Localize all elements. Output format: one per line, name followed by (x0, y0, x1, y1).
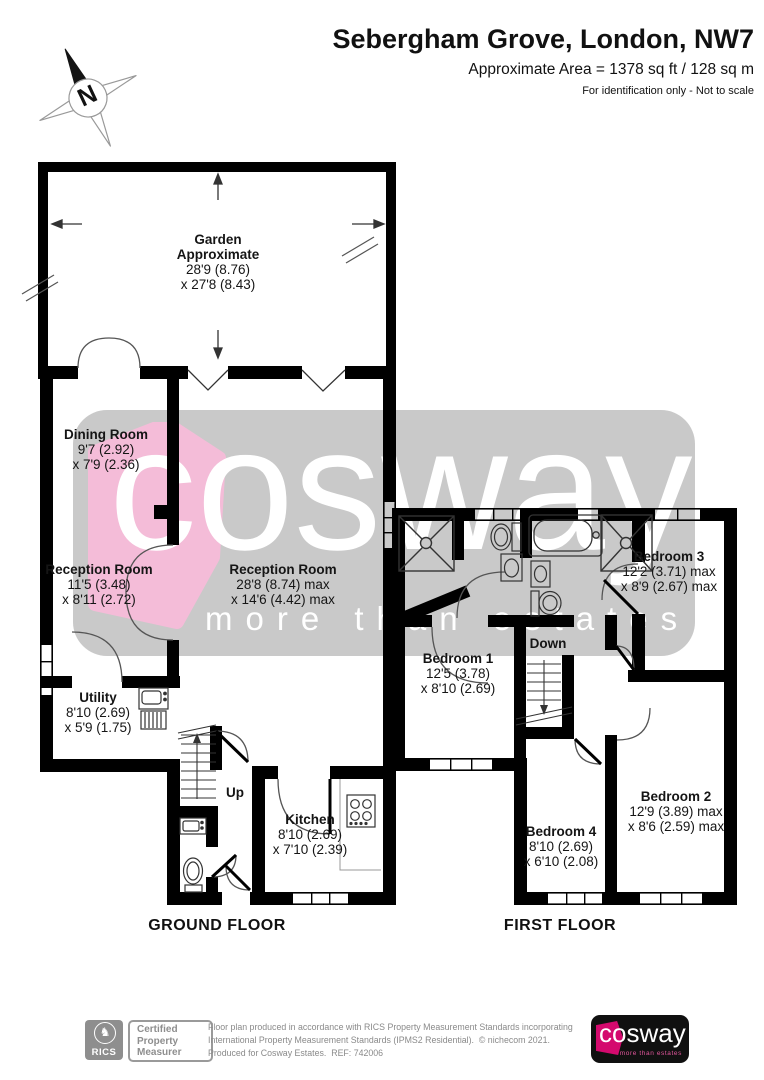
stairs-up-label: Up (226, 785, 244, 800)
bedroom-3-label: Bedroom 3 12'2 (3.71) max x 8'9 (2.67) m… (621, 549, 717, 594)
shower-ensuite (399, 516, 454, 571)
toilet-2 (531, 591, 561, 616)
disclaimer-text: Floor plan produced in accordance with R… (208, 1021, 596, 1060)
bedroom-4-label: Bedroom 4 8'10 (2.69) x 6'10 (2.08) (524, 824, 599, 869)
identification-note: For identification only - Not to scale (582, 85, 754, 97)
garden-label: Garden Approximate 28'9 (8.76) x 27'8 (8… (177, 232, 260, 292)
bathtub (529, 515, 602, 556)
floorplan-page: Sebergham Grove, London, NW7 Approximate… (0, 0, 764, 1080)
stairs-down-label: Down (530, 636, 567, 651)
wc-fixtures (180, 818, 206, 892)
reception-room-large-label: Reception Room 28'8 (8.74) max x 14'6 (4… (229, 562, 336, 607)
basin-1 (501, 554, 522, 581)
bedroom-1-label: Bedroom 1 12'5 (3.78) x 8'10 (2.69) (421, 651, 496, 696)
utility-sink (139, 688, 168, 729)
floorplan-drawing (0, 0, 764, 1080)
cosway-logo-word: cosway (599, 1018, 686, 1049)
utility-label: Utility 8'10 (2.69) x 5'9 (1.75) (64, 690, 131, 735)
rics-logo: ♞ RICS (85, 1020, 123, 1060)
kitchen-hob (347, 795, 375, 827)
bedroom-2-label: Bedroom 2 12'9 (3.89) max x 8'6 (2.59) m… (628, 789, 724, 834)
ground-floor-door-leaves (212, 731, 330, 890)
basin-2 (531, 561, 550, 587)
certified-property-measurer-badge: Certified Property Measurer (128, 1020, 213, 1062)
approximate-area: Approximate Area = 1378 sq ft / 128 sq m (468, 61, 754, 79)
rics-crest-icon: ♞ (94, 1022, 116, 1044)
dining-room-label: Dining Room 9'7 (2.92) x 7'9 (2.36) (64, 427, 148, 472)
reception-room-small-label: Reception Room 11'5 (3.48) x 8'11 (2.72) (45, 562, 152, 607)
kitchen-label: Kitchen 8'10 (2.69) x 7'10 (2.39) (273, 812, 348, 857)
page-title: Sebergham Grove, London, NW7 (332, 24, 754, 55)
rics-word: RICS (85, 1047, 123, 1058)
first-floor-title: FIRST FLOOR (504, 917, 616, 935)
cosway-logo-tagline: more than estates (620, 1050, 682, 1057)
cosway-logo: cosway more than estates (591, 1015, 689, 1063)
toilet-1 (491, 523, 521, 551)
ground-floor-title: GROUND FLOOR (148, 917, 286, 935)
